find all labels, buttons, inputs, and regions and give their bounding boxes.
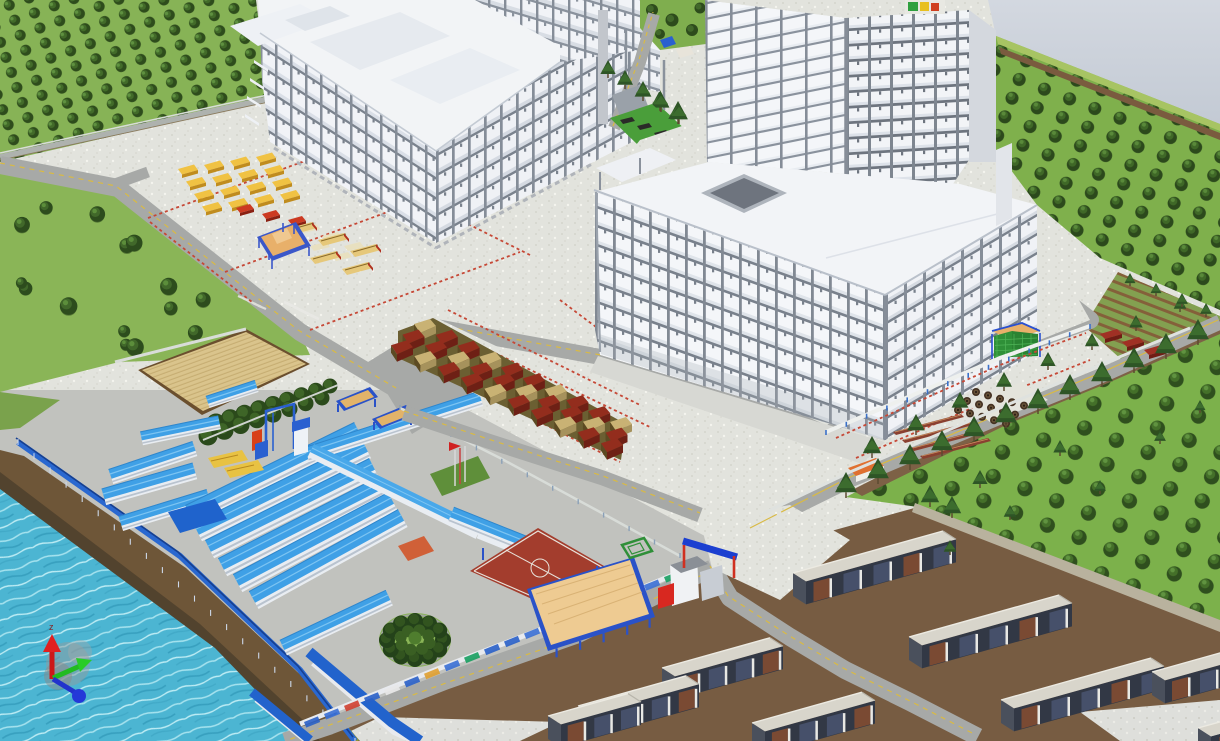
svg-text:z: z [49,622,54,632]
